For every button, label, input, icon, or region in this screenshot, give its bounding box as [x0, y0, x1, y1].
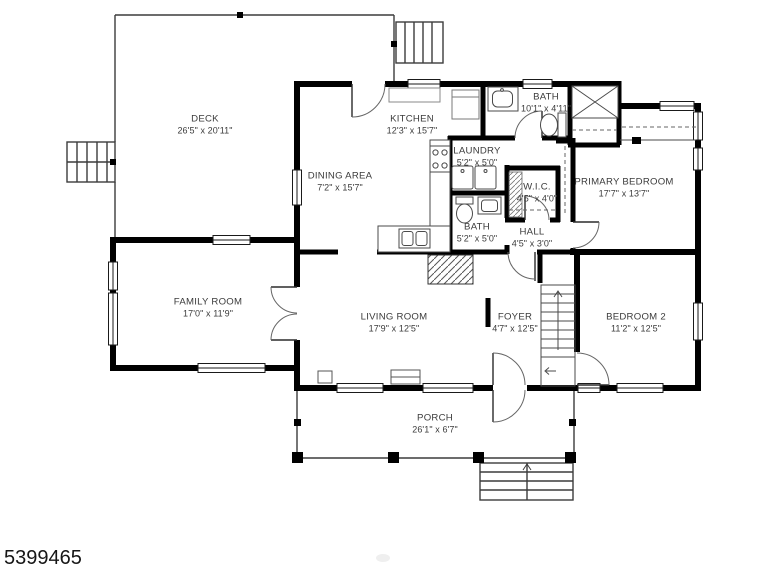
listing-id: 5399465	[4, 547, 82, 570]
deck-edge-posts	[110, 12, 397, 165]
floor-plan-page: DECK 26'5" x 20'11" KITCHEN 12'3" x 15'7…	[0, 0, 768, 576]
toilet-icon	[541, 113, 567, 137]
upper-bath-fixtures	[488, 86, 618, 137]
staircase-icon	[541, 285, 575, 386]
laundry-fixtures	[452, 166, 496, 189]
radiator-icon	[318, 370, 420, 384]
vanity-sink-icon	[488, 87, 518, 111]
range-icon	[430, 146, 450, 172]
lower-bath-fixtures	[456, 197, 501, 223]
refrigerator-icon	[452, 90, 479, 119]
deck-outline	[67, 15, 443, 240]
porch-outline	[297, 391, 575, 500]
kitchen-sink-icon	[399, 229, 430, 248]
basement-stair-hatch-icon	[428, 255, 473, 284]
deck-stairs-top-icon	[396, 22, 443, 63]
dryer-icon	[475, 166, 496, 189]
shower-icon	[572, 86, 618, 118]
counter-icon	[389, 88, 440, 102]
washer-icon	[452, 166, 473, 189]
toilet-icon	[456, 197, 473, 223]
porch-posts	[292, 419, 576, 463]
floor-plan-drawing	[0, 0, 768, 576]
faint-artifact-mark	[376, 554, 390, 562]
closets	[509, 127, 696, 217]
vanity-sink-icon	[478, 197, 501, 214]
